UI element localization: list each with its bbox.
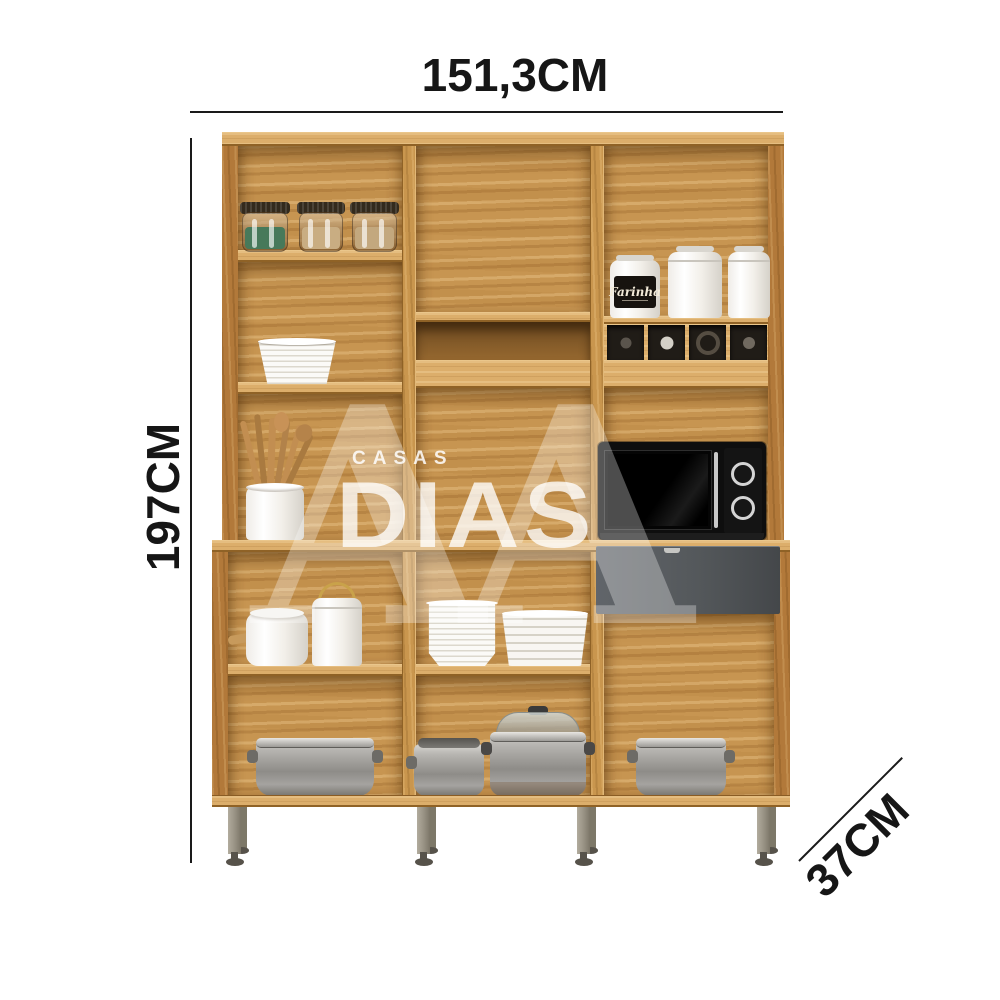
microwave-control-panel xyxy=(724,448,762,534)
plate-stack-rim xyxy=(258,338,336,345)
jar-body xyxy=(352,212,397,252)
pot-handle xyxy=(481,742,492,755)
pot-handle xyxy=(627,750,638,763)
upper-right-side-panel xyxy=(768,146,784,540)
jar-body xyxy=(242,212,288,252)
stock-pot xyxy=(490,732,586,796)
spice-jar xyxy=(352,202,397,252)
leg-foot xyxy=(415,858,433,866)
wine-cubby xyxy=(648,325,685,360)
lower-left-side-panel xyxy=(212,552,228,795)
jar-contents xyxy=(355,227,394,249)
ceramic-pot-lid xyxy=(250,608,304,618)
microwave-handle xyxy=(714,452,718,528)
pot-copper-band xyxy=(490,782,586,796)
canister-lid-seam xyxy=(668,260,722,262)
cabinet-leg xyxy=(577,807,590,854)
upper-divider-left xyxy=(402,146,416,540)
leg-foot xyxy=(575,858,593,866)
spice-jar xyxy=(242,202,288,252)
canister-lid-seam xyxy=(728,260,770,262)
cabinet-leg xyxy=(417,807,430,854)
upper-left-side-panel xyxy=(222,146,238,540)
spoon-head xyxy=(274,412,289,432)
microwave-window xyxy=(608,454,708,526)
upper-middle-lower-compartment xyxy=(416,388,590,540)
microwave-knob xyxy=(731,462,755,486)
jar-body xyxy=(299,212,343,252)
glass-lid xyxy=(496,712,580,734)
upper-middle-compartment xyxy=(416,146,590,312)
cabinet-leg xyxy=(228,807,241,854)
upper-middle-front-rail xyxy=(416,360,590,388)
jar-contents-green xyxy=(245,227,285,249)
bowl-stack xyxy=(502,612,588,666)
bowl-stack-rim xyxy=(502,610,588,617)
ceramic-canister xyxy=(312,598,362,666)
bottom-board xyxy=(212,795,790,807)
kitchen-canister xyxy=(668,252,722,318)
graphite-drawer xyxy=(596,546,780,614)
spice-jar xyxy=(299,202,343,252)
kitchen-canister: Farinha xyxy=(610,260,660,318)
saucer-stack-rim xyxy=(426,600,498,606)
canister-lid xyxy=(616,255,654,261)
steel-pot-right xyxy=(636,738,726,796)
drawer-handle xyxy=(664,548,680,553)
leg-foot xyxy=(755,858,773,866)
wine-cubby xyxy=(689,325,726,360)
wine-cubby xyxy=(607,325,644,360)
microwave-knob xyxy=(731,496,755,520)
cabinet-leg xyxy=(757,807,770,854)
microwave-base xyxy=(600,533,764,540)
pot-handle xyxy=(724,750,735,763)
upper-middle-shelf xyxy=(416,312,590,322)
upper-cabinet-top-edge xyxy=(222,132,784,146)
canister-lid xyxy=(676,246,714,252)
ceramic-pot xyxy=(246,612,308,666)
pot-handle xyxy=(406,756,417,769)
utensil-crock xyxy=(246,486,304,540)
steel-pot xyxy=(414,744,484,796)
upper-right-front-rail xyxy=(604,360,768,388)
product-image: 151,3CM 197CM 37CM xyxy=(0,0,1000,1000)
utensil-crock-rim xyxy=(246,483,304,492)
pot-handle xyxy=(584,742,595,755)
pot-lid xyxy=(418,738,480,748)
canister-label: Farinha xyxy=(614,276,656,308)
pan-handle xyxy=(247,750,258,763)
kitchen-cabinet: Farinha xyxy=(0,0,1000,1000)
saucer-stack xyxy=(426,602,498,666)
wine-cubby xyxy=(730,325,767,360)
canister-lid-seam xyxy=(312,607,362,609)
microwave xyxy=(598,442,766,540)
pan-handle xyxy=(372,750,383,763)
upper-middle-niche xyxy=(416,322,590,360)
roasting-pan xyxy=(256,738,374,796)
canister-lid xyxy=(734,246,764,252)
microwave-door xyxy=(604,450,712,530)
kitchen-canister xyxy=(728,252,770,318)
leg-foot xyxy=(226,858,244,866)
plate-stack-upper xyxy=(258,340,336,384)
